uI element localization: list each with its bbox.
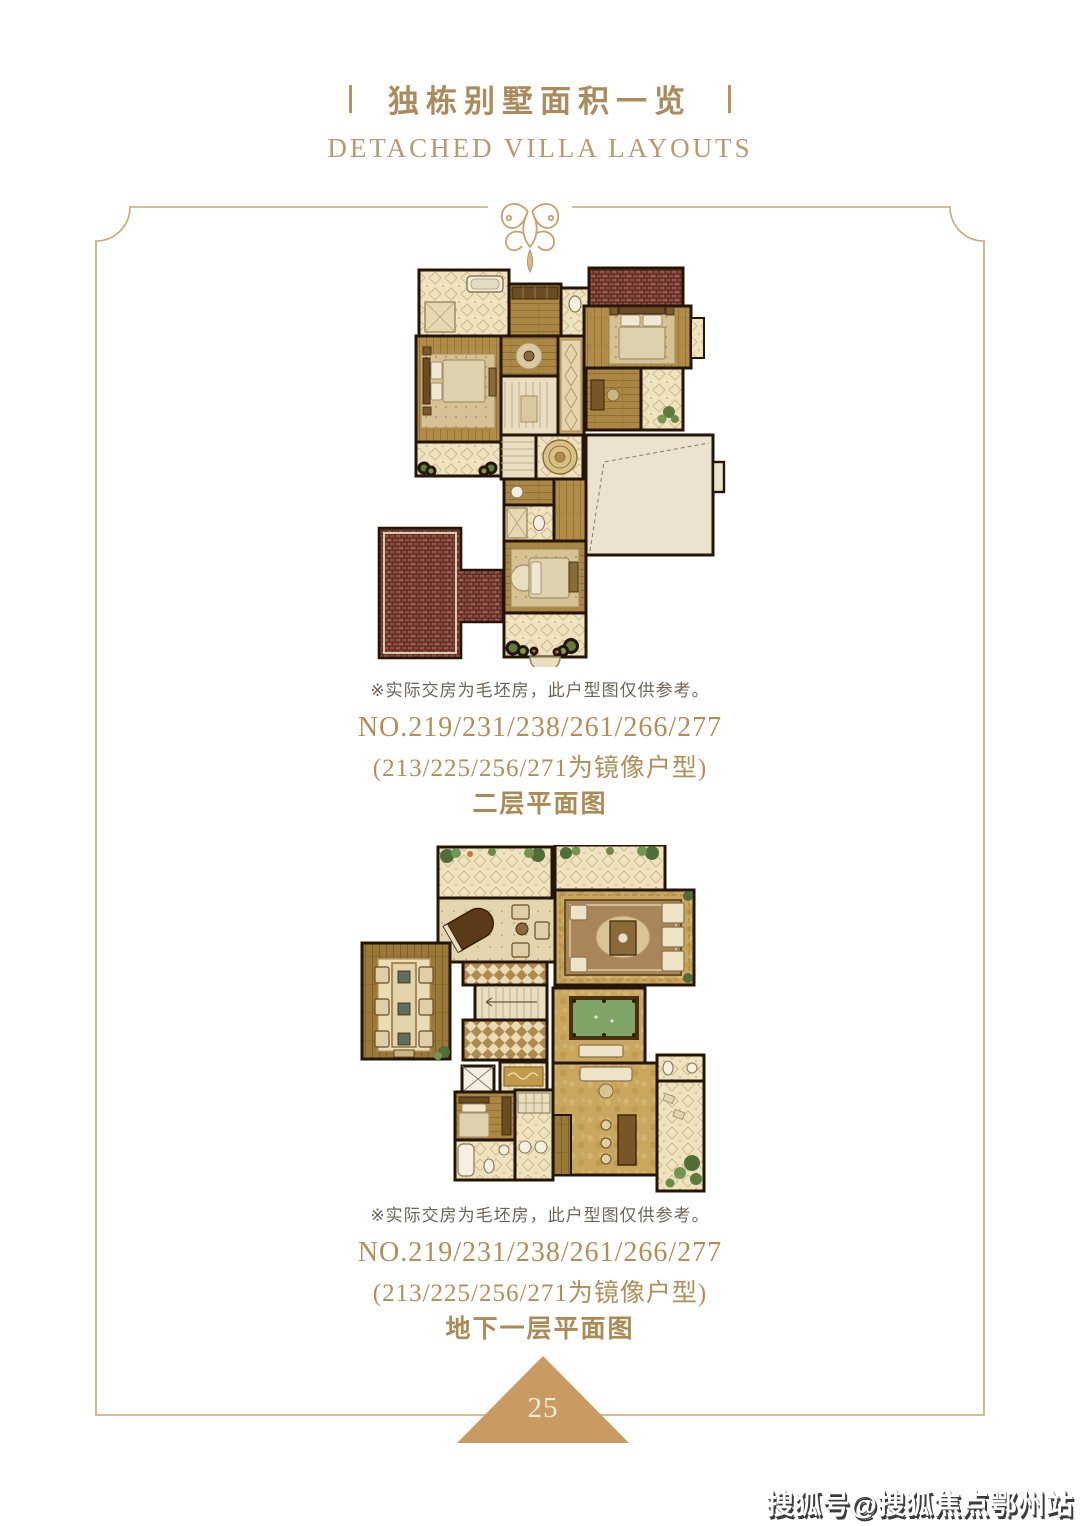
page-number: 25 (493, 1392, 593, 1425)
page-number-triangle (0, 0, 1080, 1526)
watermark: 搜狐号@搜狐焦点鄂州站 (767, 1483, 1074, 1522)
